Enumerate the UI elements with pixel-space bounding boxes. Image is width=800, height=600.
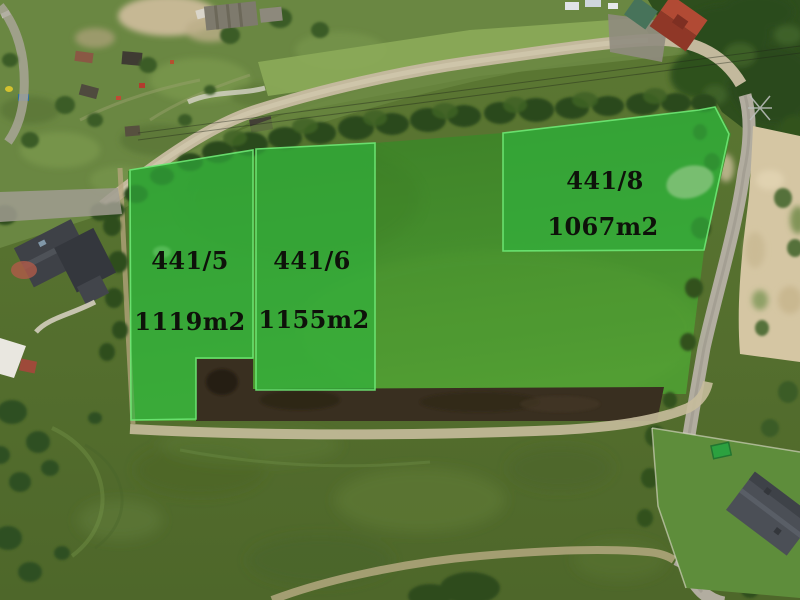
trampoline (711, 442, 731, 458)
aerial-parcel-listing-image: 441/5 1119m2 441/6 1155m2 441/8 1067m2 (0, 0, 800, 600)
parcel-441-6-id-label: 441/6 (273, 249, 351, 273)
tree-shadow (206, 369, 238, 395)
parcel-441-8-id-label: 441/8 (566, 169, 644, 193)
parcel-441-8-area-label: 1067m2 (547, 215, 658, 239)
parcel-441-5-area-label: 1119m2 (134, 310, 245, 334)
parcel-441-5-id-label: 441/5 (151, 249, 229, 273)
patio (11, 261, 37, 279)
parcel-441-6-area-label: 1155m2 (258, 308, 369, 332)
aerial-photo-background (0, 0, 800, 600)
